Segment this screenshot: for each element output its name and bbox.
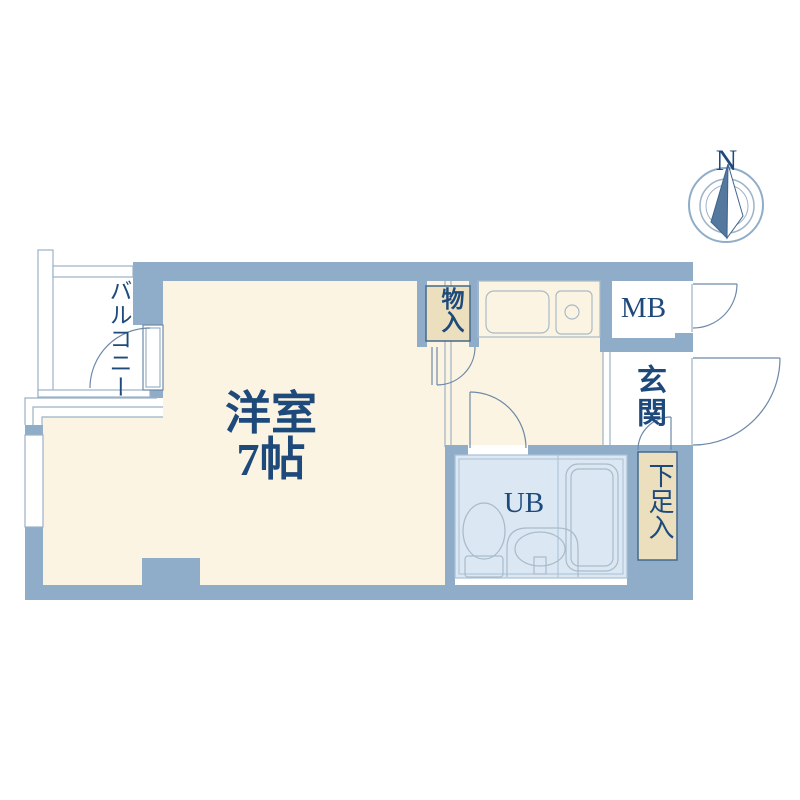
wall-top xyxy=(133,262,693,281)
wall-left-lower xyxy=(25,527,43,600)
wall-window-cap-top xyxy=(25,425,43,435)
wall-mb-bottom xyxy=(600,338,675,352)
wall-below-shoebox xyxy=(638,560,677,585)
compass-north-label: N xyxy=(710,144,743,178)
western-room-size: 7帖 xyxy=(171,437,371,483)
wall-ub-top-left xyxy=(455,445,468,455)
shoebox-label: 下足入 xyxy=(641,462,678,540)
floor-plan-page: バルコニー 洋室 7帖 物入 MB 玄関 下足入 UB N xyxy=(0,0,800,800)
balcony-label: バルコニー xyxy=(101,279,135,399)
wall-stub-right-mid xyxy=(675,333,693,352)
balcony-parapet-left xyxy=(38,250,53,397)
wall-bottom xyxy=(25,585,693,600)
window-left xyxy=(25,435,43,527)
western-room-label: 洋室 7帖 xyxy=(171,391,371,483)
storage-label: 物入 xyxy=(433,287,467,333)
wall-ub-top-right xyxy=(528,445,638,455)
meter-box-label: MB xyxy=(612,292,675,325)
mb-door-arc xyxy=(693,284,737,328)
wall-pillar-bottom xyxy=(142,558,200,585)
wall-ub-right-strip xyxy=(627,455,638,585)
entrance-label: 玄関 xyxy=(626,364,670,430)
entrance-door-arc xyxy=(693,358,780,445)
western-room-name: 洋室 xyxy=(171,391,371,437)
unit-bath-label: UB xyxy=(494,487,554,520)
wall-pillar-topleft xyxy=(133,281,163,325)
floor-plan-drawing xyxy=(0,0,800,800)
wall-ub-left xyxy=(445,445,455,585)
balcony-parapet-top xyxy=(53,266,133,277)
